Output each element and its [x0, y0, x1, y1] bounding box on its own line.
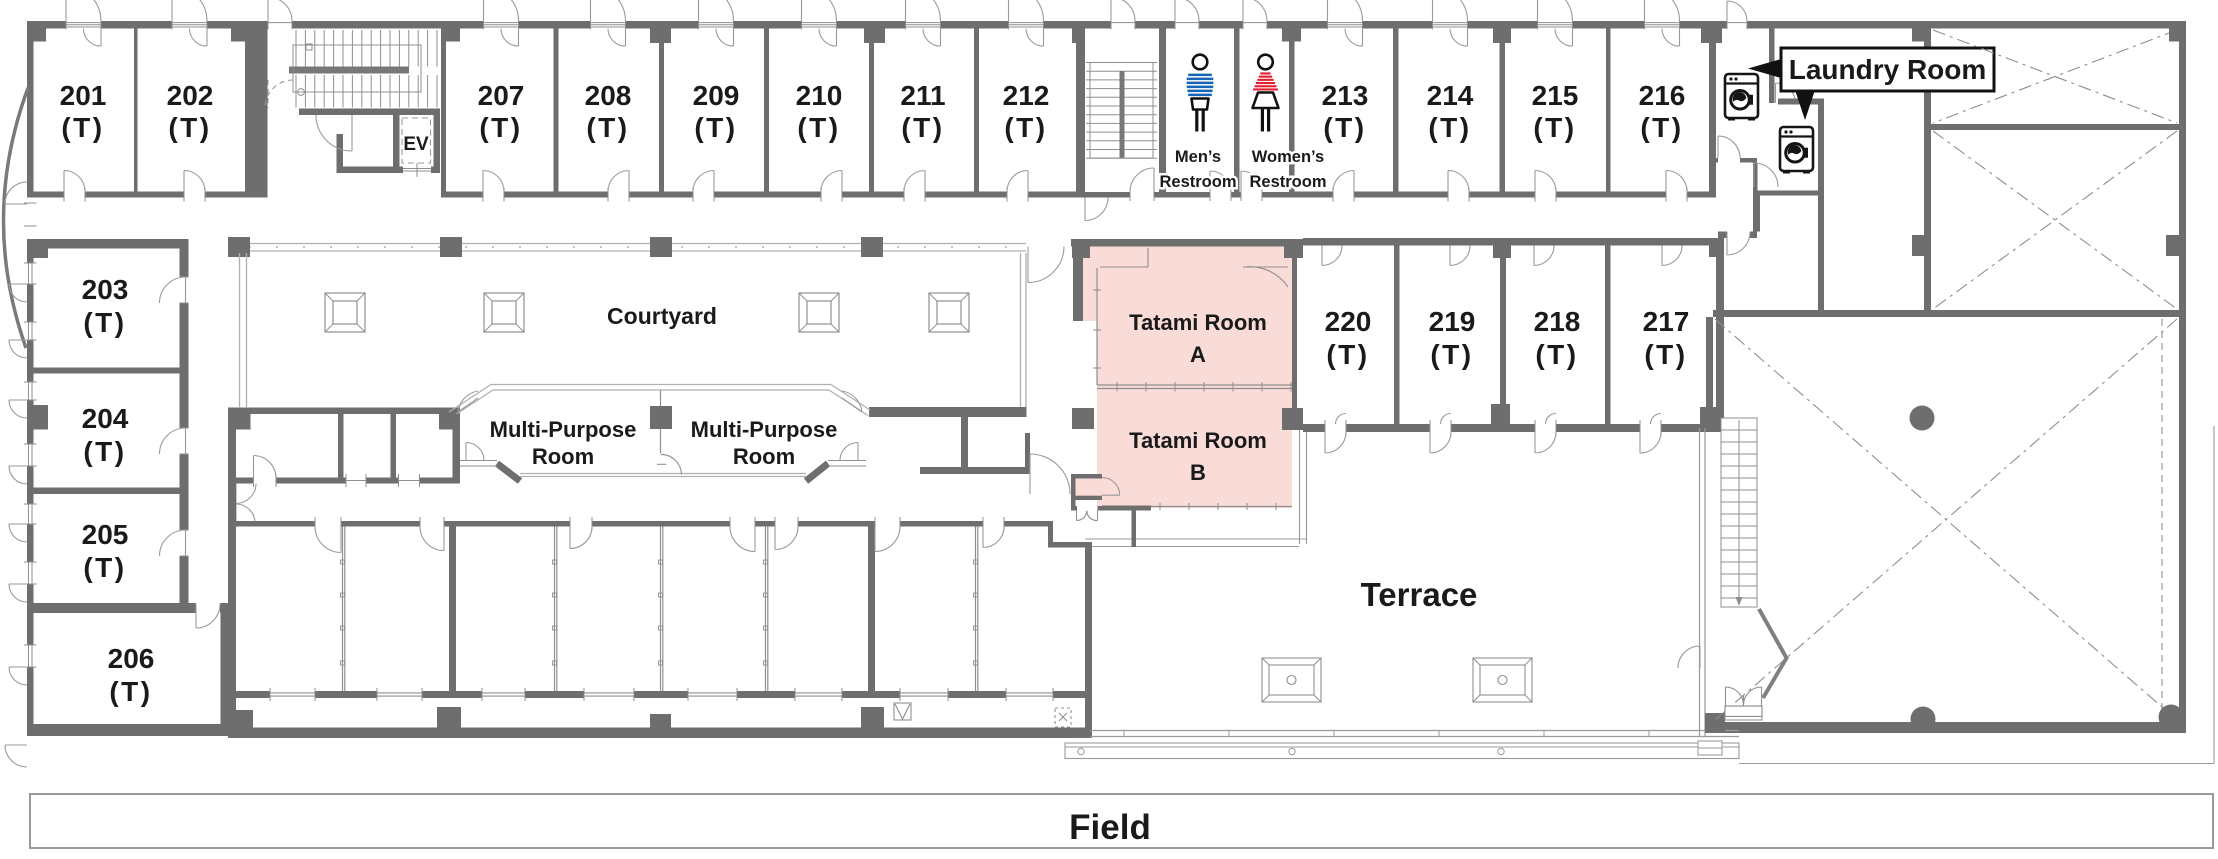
- svg-text:(T): (T): [1004, 112, 1047, 143]
- svg-text:(T): (T): [586, 112, 629, 143]
- svg-text:Multi-Purpose: Multi-Purpose: [691, 417, 838, 442]
- svg-text:Multi-Purpose: Multi-Purpose: [490, 417, 637, 442]
- svg-text:211: 211: [900, 80, 945, 111]
- svg-text:(T): (T): [168, 112, 211, 143]
- svg-text:B: B: [1190, 460, 1206, 485]
- svg-text:(T): (T): [1326, 339, 1369, 370]
- svg-text:Field: Field: [1069, 808, 1151, 847]
- svg-text:(T): (T): [1640, 112, 1683, 143]
- svg-text:(T): (T): [109, 676, 152, 707]
- svg-text:Restroom: Restroom: [1249, 173, 1326, 191]
- svg-text:EV: EV: [403, 134, 429, 155]
- svg-text:202: 202: [167, 80, 214, 111]
- svg-text:Tatami Room: Tatami Room: [1129, 310, 1267, 335]
- svg-text:(T): (T): [1533, 112, 1576, 143]
- svg-text:Women’s: Women’s: [1252, 148, 1324, 166]
- svg-text:(T): (T): [797, 112, 840, 143]
- svg-text:(T): (T): [694, 112, 737, 143]
- svg-text:210: 210: [796, 80, 843, 111]
- svg-text:Terrace: Terrace: [1361, 576, 1478, 613]
- svg-text:Tatami Room: Tatami Room: [1129, 428, 1267, 453]
- svg-text:(T): (T): [1430, 339, 1473, 370]
- svg-text:212: 212: [1003, 80, 1050, 111]
- svg-text:Courtyard: Courtyard: [607, 303, 717, 329]
- svg-text:215: 215: [1532, 80, 1579, 111]
- svg-text:Restroom: Restroom: [1159, 173, 1236, 191]
- svg-text:(T): (T): [479, 112, 522, 143]
- svg-text:(T): (T): [1428, 112, 1471, 143]
- svg-text:A: A: [1190, 342, 1206, 367]
- svg-text:209: 209: [693, 80, 740, 111]
- svg-text:(T): (T): [83, 552, 126, 583]
- svg-text:(T): (T): [61, 112, 104, 143]
- svg-text:217: 217: [1643, 306, 1690, 337]
- svg-text:220: 220: [1325, 306, 1372, 337]
- svg-text:216: 216: [1639, 80, 1686, 111]
- svg-text:204: 204: [82, 403, 129, 434]
- svg-text:203: 203: [82, 274, 129, 305]
- svg-text:Laundry Room: Laundry Room: [1789, 54, 1987, 85]
- svg-text:201: 201: [60, 80, 107, 111]
- svg-text:219: 219: [1429, 306, 1476, 337]
- svg-text:208: 208: [585, 80, 632, 111]
- svg-text:(T): (T): [1644, 339, 1687, 370]
- svg-text:207: 207: [478, 80, 525, 111]
- svg-text:(T): (T): [83, 307, 126, 338]
- svg-text:213: 213: [1322, 80, 1369, 111]
- svg-text:205: 205: [82, 519, 129, 550]
- svg-text:218: 218: [1534, 306, 1581, 337]
- svg-text:214: 214: [1427, 80, 1474, 111]
- svg-text:Men’s: Men’s: [1175, 148, 1221, 166]
- svg-text:(T): (T): [901, 112, 944, 143]
- svg-text:Room: Room: [532, 444, 594, 469]
- svg-text:(T): (T): [1323, 112, 1366, 143]
- svg-text:Room: Room: [733, 444, 795, 469]
- svg-text:(T): (T): [1535, 339, 1578, 370]
- svg-text:206: 206: [108, 643, 155, 674]
- svg-text:(T): (T): [83, 436, 126, 467]
